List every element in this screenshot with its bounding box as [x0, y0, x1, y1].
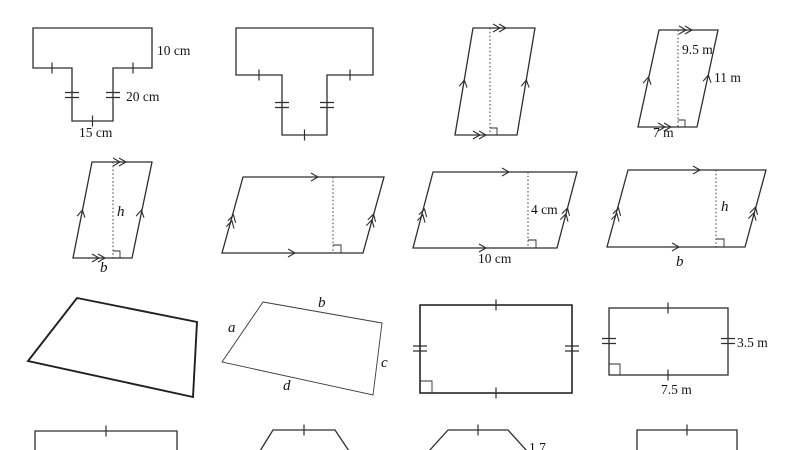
- figure-rectangle-ticks: [413, 300, 579, 399]
- figure-partial-rectangle-1: [35, 426, 177, 450]
- shape-outline: [28, 298, 197, 397]
- figure-quadrilateral-plain: [28, 298, 197, 397]
- base-label: 10 cm: [478, 251, 512, 266]
- right-angle-icon: [528, 240, 536, 248]
- base-label: 7 m: [653, 125, 674, 140]
- side-c-label: c: [381, 355, 388, 371]
- shape-outline: [33, 28, 152, 121]
- height-label: 9.5 m: [682, 42, 713, 57]
- side-label: 3.5 m: [737, 335, 768, 350]
- shape-outline: [73, 162, 152, 258]
- right-angle-icon: [609, 364, 620, 375]
- figure-parallelogram-steep-labeled: 9.5 m 11 m 7 m: [638, 26, 741, 140]
- right-angle-icon: [716, 239, 724, 247]
- right-angle-icon: [490, 128, 497, 135]
- shape-outline: [609, 308, 728, 375]
- shape-outline: [222, 177, 384, 253]
- bottom-label: 15 cm: [79, 125, 113, 140]
- figure-rectangle-labeled: 3.5 m 7.5 m: [602, 303, 768, 398]
- right-angle-icon: [678, 120, 685, 127]
- shape-outline: [455, 28, 535, 135]
- base-label: b: [676, 254, 684, 270]
- double-parallel-mark-icon: [748, 206, 759, 221]
- figure-partial-trapezoid-1: [260, 425, 349, 450]
- figure-parallelogram-wide-hb: h b: [607, 166, 766, 270]
- figure-partial-trapezoid-2: 1.7: [429, 425, 546, 450]
- base-label: 7.5 m: [661, 382, 692, 397]
- partial-label: 1.7: [529, 440, 546, 450]
- double-parallel-mark-icon: [366, 213, 377, 228]
- shape-outline: [607, 170, 766, 247]
- worksheet-page: 10 cm 20 cm 15 cm 9.5 m 11 m 7 m: [0, 0, 800, 450]
- side-label: 11 m: [714, 70, 741, 85]
- figure-parallelogram-wide-height: [222, 173, 384, 257]
- shape-outline: [222, 302, 382, 395]
- side-a-label: a: [228, 320, 236, 336]
- double-parallel-mark-icon: [611, 207, 622, 222]
- double-parallel-mark-icon: [560, 207, 571, 222]
- figure-t-shape-labeled: 10 cm 20 cm 15 cm: [33, 28, 191, 140]
- stem-label: 20 cm: [126, 89, 160, 104]
- shape-outline: [420, 305, 572, 393]
- figure-parallelogram-wide-labeled: 4 cm 10 cm: [413, 168, 577, 266]
- figure-quadrilateral-abcd: a b c d: [222, 295, 388, 395]
- double-parallel-mark-icon: [226, 214, 237, 229]
- side-d-label: d: [283, 378, 291, 394]
- right-angle-icon: [420, 381, 432, 393]
- figures-canvas: 10 cm 20 cm 15 cm 9.5 m 11 m 7 m: [0, 0, 800, 450]
- side-label: 10 cm: [157, 43, 191, 58]
- figure-t-shape-unlabeled: [236, 28, 373, 141]
- double-parallel-mark-icon: [417, 208, 428, 223]
- base-label: b: [100, 260, 108, 276]
- figure-parallelogram-steep-height: [455, 24, 535, 139]
- shape-outline: [236, 28, 373, 135]
- height-label: h: [117, 204, 125, 220]
- right-angle-icon: [113, 251, 120, 258]
- figure-parallelogram-steep-hb: h b: [73, 158, 152, 276]
- side-b-label: b: [318, 295, 326, 311]
- height-label: 4 cm: [531, 202, 558, 217]
- right-angle-icon: [333, 245, 341, 253]
- height-label: h: [721, 199, 729, 215]
- figure-partial-rectangle-2: [637, 425, 737, 450]
